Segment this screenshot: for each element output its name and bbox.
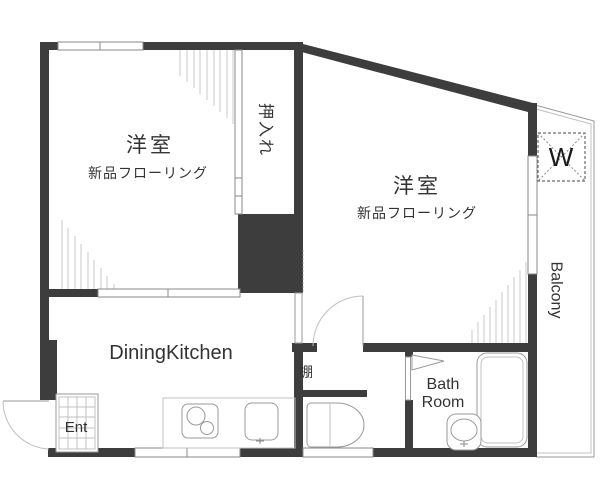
stove	[182, 404, 218, 438]
door-entrance-arc	[3, 401, 49, 449]
wall-room-dk	[40, 289, 98, 297]
balcony-label: Balcony	[548, 262, 565, 319]
sliding-door-room-dk	[98, 289, 240, 297]
partition-thin	[295, 293, 302, 343]
washbasin-bowl	[451, 419, 477, 441]
hatch-left-room-top-right	[180, 50, 233, 124]
washer-label: W	[549, 142, 574, 172]
bathtub	[477, 353, 527, 447]
wall-right-upper	[528, 103, 537, 156]
dining-kitchen-label: DiningKitchen	[109, 342, 232, 364]
toilet-body	[307, 403, 364, 447]
wall-bath-left	[405, 400, 413, 448]
wall-center-vertical	[294, 42, 303, 214]
bathroom-label-line2: Room	[422, 394, 465, 411]
wall-bottom-b	[240, 448, 303, 457]
wall-shelf-divider	[303, 390, 367, 397]
wall-left	[40, 42, 49, 400]
kitchen-sink	[245, 403, 278, 440]
entrance-label: Ent	[65, 419, 88, 436]
right-room-sublabel: 新品フローリング	[357, 205, 477, 221]
closet-solid-block	[238, 214, 303, 293]
kitchen	[163, 398, 295, 448]
shelf-label: 棚	[299, 364, 313, 380]
door-bathroom-swing	[412, 355, 444, 370]
washer-spot: W	[538, 133, 585, 181]
wall-entrance-jamb	[48, 340, 57, 400]
toilet	[307, 403, 364, 447]
closet-label: 押入れ	[257, 103, 275, 157]
door-bathroom-leaf	[406, 357, 411, 400]
wall-top-diagonal	[294, 42, 537, 112]
left-room-label: 洋室	[126, 134, 174, 157]
door-right-room-arc	[313, 296, 363, 346]
wall-right-lower	[528, 274, 537, 457]
floorplan-canvas: W 洋室 新品フローリング 洋室 新品フローリング 押入れ Balcony Di…	[0, 0, 605, 481]
left-room-sublabel: 新品フローリング	[88, 165, 208, 181]
bathroom-label-line1: Bath	[427, 376, 460, 393]
window-toilet	[303, 448, 373, 457]
floorplan-svg: W 洋室 新品フローリング 洋室 新品フローリング 押入れ Balcony Di…	[0, 0, 605, 481]
hatch-right-room-bottom-right	[472, 262, 526, 343]
hatch-left-room-bottom-left	[62, 220, 114, 289]
wall-hall-top-b	[363, 343, 537, 352]
closet-sliding-front	[235, 50, 242, 214]
right-room-label: 洋室	[393, 175, 441, 198]
